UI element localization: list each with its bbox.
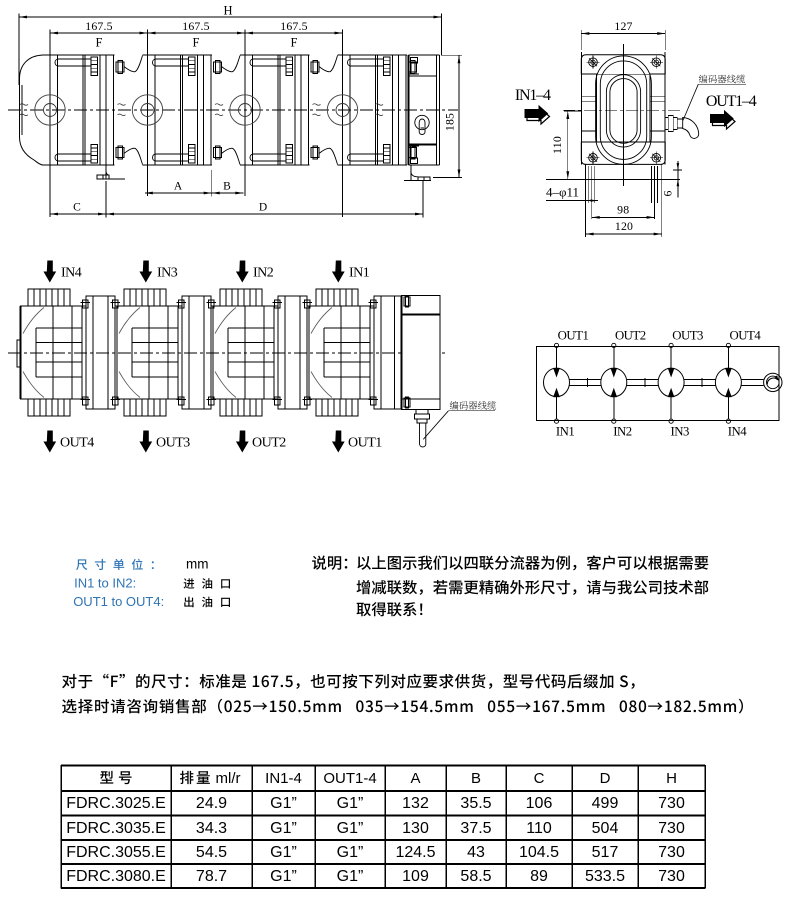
svg-text:533.5: 533.5 <box>585 868 625 885</box>
svg-text:OUT1–4: OUT1–4 <box>706 93 757 110</box>
svg-text:124.5: 124.5 <box>395 844 435 861</box>
svg-text:D: D <box>259 202 267 214</box>
svg-text:C: C <box>534 770 545 787</box>
svg-text:110: 110 <box>526 820 552 837</box>
svg-text:78.7: 78.7 <box>196 868 227 885</box>
svg-text:OUT4: OUT4 <box>60 436 94 451</box>
svg-text:104.5: 104.5 <box>519 844 559 861</box>
svg-text:OUT2: OUT2 <box>252 436 286 451</box>
svg-text:4–φ11: 4–φ11 <box>546 185 579 200</box>
svg-text:F: F <box>291 36 298 50</box>
svg-text:G1”: G1” <box>337 795 364 812</box>
svg-text:G1”: G1” <box>270 844 297 861</box>
svg-text:G1”: G1” <box>270 795 297 812</box>
svg-text:127: 127 <box>614 19 632 33</box>
svg-text:OUT1-4: OUT1-4 <box>323 770 376 787</box>
svg-text:730: 730 <box>658 844 685 861</box>
svg-text:185: 185 <box>443 113 457 131</box>
svg-text:FDRC.3055.E: FDRC.3055.E <box>66 844 166 861</box>
svg-text:504: 504 <box>592 820 619 837</box>
svg-text:IN1–4: IN1–4 <box>515 87 551 104</box>
svg-text:167.5: 167.5 <box>182 19 210 33</box>
svg-text:G1”: G1” <box>337 820 364 837</box>
svg-text:H: H <box>666 770 677 787</box>
svg-text:mm: mm <box>186 557 209 572</box>
svg-text:24.9: 24.9 <box>196 795 227 812</box>
svg-text:OUT1: OUT1 <box>558 329 589 343</box>
svg-text:517: 517 <box>592 844 619 861</box>
svg-text:54.5: 54.5 <box>196 844 227 861</box>
svg-text:6: 6 <box>661 190 675 196</box>
svg-text:FDRC.3080.E: FDRC.3080.E <box>66 868 166 885</box>
svg-text:IN1 to IN2:: IN1 to IN2: <box>74 576 136 591</box>
svg-text:106: 106 <box>526 795 553 812</box>
svg-text:IN2: IN2 <box>613 425 632 439</box>
svg-text:167.5: 167.5 <box>280 19 308 33</box>
svg-text:G1”: G1” <box>337 868 364 885</box>
svg-text:132: 132 <box>402 795 429 812</box>
svg-text:OUT1 to OUT4:: OUT1 to OUT4: <box>73 594 164 609</box>
svg-text:A: A <box>410 770 420 787</box>
svg-text:H: H <box>223 4 232 18</box>
svg-text:G1”: G1” <box>270 820 297 837</box>
svg-text:IN4: IN4 <box>61 266 82 281</box>
svg-text:110: 110 <box>550 136 564 154</box>
svg-text:98: 98 <box>617 203 629 217</box>
svg-text:IN3: IN3 <box>157 266 178 281</box>
svg-text:34.3: 34.3 <box>196 820 227 837</box>
svg-text:IN1-4: IN1-4 <box>265 770 302 787</box>
svg-text:G1”: G1” <box>270 868 297 885</box>
svg-text:IN1: IN1 <box>349 266 370 281</box>
svg-text:D: D <box>600 770 611 787</box>
svg-text:730: 730 <box>658 868 685 885</box>
svg-text:58.5: 58.5 <box>460 868 491 885</box>
svg-text:ml/r: ml/r <box>216 770 241 787</box>
svg-text:IN2: IN2 <box>253 266 274 281</box>
svg-text:730: 730 <box>658 795 685 812</box>
svg-text:B: B <box>471 770 481 787</box>
svg-text:IN1: IN1 <box>556 425 575 439</box>
svg-text:OUT2: OUT2 <box>615 329 646 343</box>
svg-text:F: F <box>193 36 200 50</box>
svg-text:OUT3: OUT3 <box>156 436 190 451</box>
svg-text:FDRC.3035.E: FDRC.3035.E <box>66 820 166 837</box>
svg-text:167.5: 167.5 <box>85 19 113 33</box>
svg-text:730: 730 <box>658 820 685 837</box>
svg-text:120: 120 <box>615 219 633 233</box>
svg-text:OUT3: OUT3 <box>672 329 703 343</box>
svg-text:109: 109 <box>402 868 429 885</box>
svg-text:F: F <box>96 36 103 50</box>
svg-text:130: 130 <box>402 820 429 837</box>
svg-text:C: C <box>73 202 81 214</box>
svg-text:A: A <box>174 181 183 193</box>
svg-text:OUT1: OUT1 <box>348 436 382 451</box>
svg-text:FDRC.3025.E: FDRC.3025.E <box>66 795 166 812</box>
svg-text:OUT4: OUT4 <box>730 329 762 343</box>
svg-text:B: B <box>223 181 231 193</box>
svg-text:499: 499 <box>592 795 619 812</box>
svg-text:IN3: IN3 <box>670 425 689 439</box>
svg-text:G1”: G1” <box>337 844 364 861</box>
svg-text:35.5: 35.5 <box>460 795 491 812</box>
svg-text:89: 89 <box>530 868 548 885</box>
svg-text:43: 43 <box>467 844 485 861</box>
svg-text:IN4: IN4 <box>728 425 748 439</box>
svg-text:37.5: 37.5 <box>460 820 491 837</box>
